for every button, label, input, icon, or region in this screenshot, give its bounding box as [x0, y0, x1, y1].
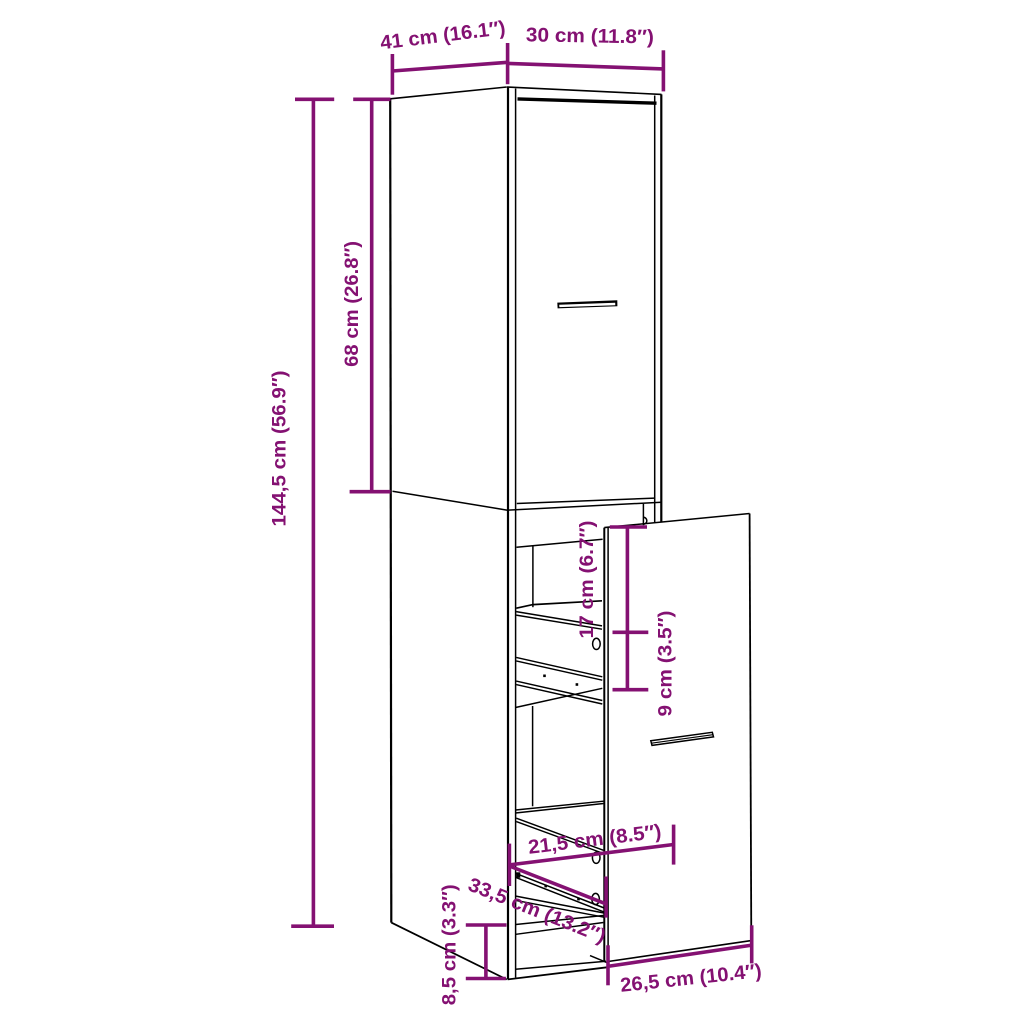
svg-text:144,5 cm (56.9″): 144,5 cm (56.9″): [269, 371, 291, 527]
svg-text:68 cm (26.8″): 68 cm (26.8″): [341, 241, 363, 367]
svg-text:9 cm (3.5″): 9 cm (3.5″): [654, 611, 676, 717]
svg-text:30 cm (11.8″): 30 cm (11.8″): [526, 24, 654, 48]
svg-text:8,5 cm (3.3″): 8,5 cm (3.3″): [438, 884, 460, 1005]
svg-text:17 cm (6.7″): 17 cm (6.7″): [576, 521, 598, 639]
